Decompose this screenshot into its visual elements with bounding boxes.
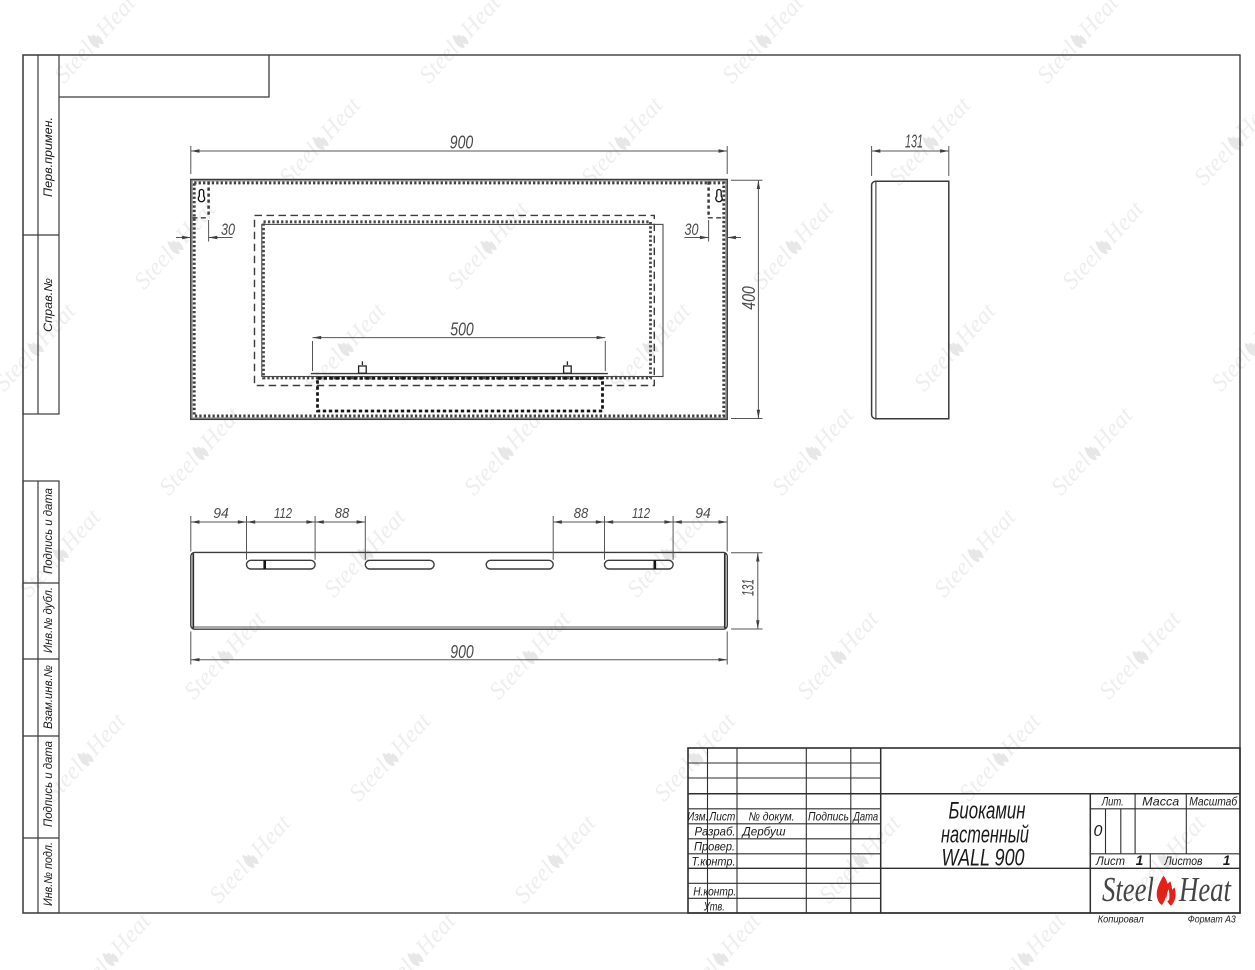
svg-text:88: 88 [335,505,350,522]
svg-text:Дербуш: Дербуш [741,824,786,838]
svg-text:Подпись: Подпись [808,809,849,823]
svg-text:Масштаб: Масштаб [1189,795,1238,809]
svg-text:Провер.: Провер. [694,839,735,853]
svg-text:94: 94 [695,505,711,522]
svg-text:Подпись и дата: Подпись и дата [43,741,55,827]
svg-text:Heat: Heat [1178,870,1232,909]
svg-text:Инв.№ дубл.: Инв.№ дубл. [43,587,55,653]
svg-text:88: 88 [574,505,589,522]
svg-text:Биокамин: Биокамин [949,797,1026,824]
svg-text:Формат А3: Формат А3 [1188,914,1236,926]
svg-text:30: 30 [221,220,235,239]
svg-text:Лит.: Лит. [1101,795,1124,809]
svg-text:Справ.№: Справ.№ [43,277,55,332]
svg-text:Изм.: Изм. [687,809,708,823]
svg-text:WALL 900: WALL 900 [942,845,1025,872]
svg-text:Утв.: Утв. [703,899,725,913]
svg-text:900: 900 [450,132,474,153]
svg-text:500: 500 [450,319,474,340]
svg-text:Подпись и дата: Подпись и дата [43,488,55,574]
svg-text:Перв.примен.: Перв.примен. [43,117,55,197]
svg-text:1: 1 [1223,853,1231,868]
svg-text:1: 1 [1136,853,1144,868]
svg-text:Лист: Лист [1095,854,1125,868]
svg-text:900: 900 [450,641,474,662]
svg-text:№ докум.: № докум. [749,809,795,823]
svg-text:Листов: Листов [1164,854,1203,868]
svg-text:94: 94 [213,505,229,522]
svg-text:0: 0 [1094,823,1103,840]
svg-text:Т.контр.: Т.контр. [692,854,736,868]
svg-text:Н.контр.: Н.контр. [693,884,736,898]
svg-text:112: 112 [274,505,292,522]
svg-text:400: 400 [738,286,759,310]
svg-text:131: 131 [905,131,923,152]
svg-text:112: 112 [632,505,650,522]
svg-text:Взам.инв.№: Взам.инв.№ [43,664,55,729]
svg-text:Масса: Масса [1142,795,1179,809]
svg-text:Лист: Лист [708,809,735,823]
svg-text:131: 131 [740,579,758,596]
svg-text:Разраб.: Разраб. [695,824,736,838]
svg-text:Копировал: Копировал [1098,914,1144,926]
svg-text:Инв.№ подл.: Инв.№ подл. [43,842,55,906]
svg-text:30: 30 [685,220,699,239]
svg-text:Steel: Steel [1102,870,1154,909]
svg-text:Дата: Дата [852,809,879,823]
